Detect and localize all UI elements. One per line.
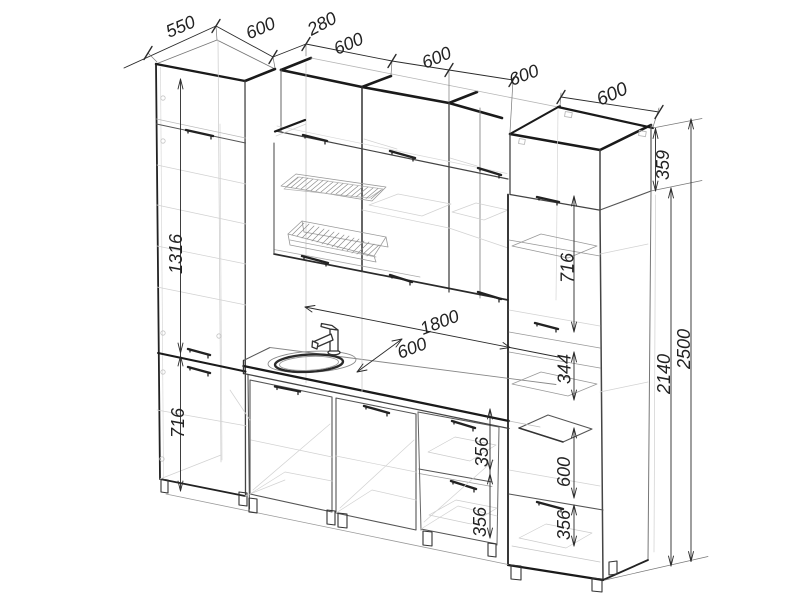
svg-text:1316: 1316 — [166, 233, 186, 274]
svg-text:356: 356 — [472, 436, 492, 467]
svg-text:600: 600 — [554, 457, 574, 487]
svg-text:359: 359 — [653, 150, 673, 180]
svg-text:356: 356 — [470, 506, 490, 537]
svg-text:716: 716 — [558, 252, 578, 283]
svg-text:716: 716 — [168, 407, 188, 438]
svg-text:356: 356 — [554, 509, 574, 540]
svg-text:2500: 2500 — [674, 329, 694, 370]
svg-text:344: 344 — [555, 354, 575, 384]
svg-text:2140: 2140 — [654, 354, 674, 395]
